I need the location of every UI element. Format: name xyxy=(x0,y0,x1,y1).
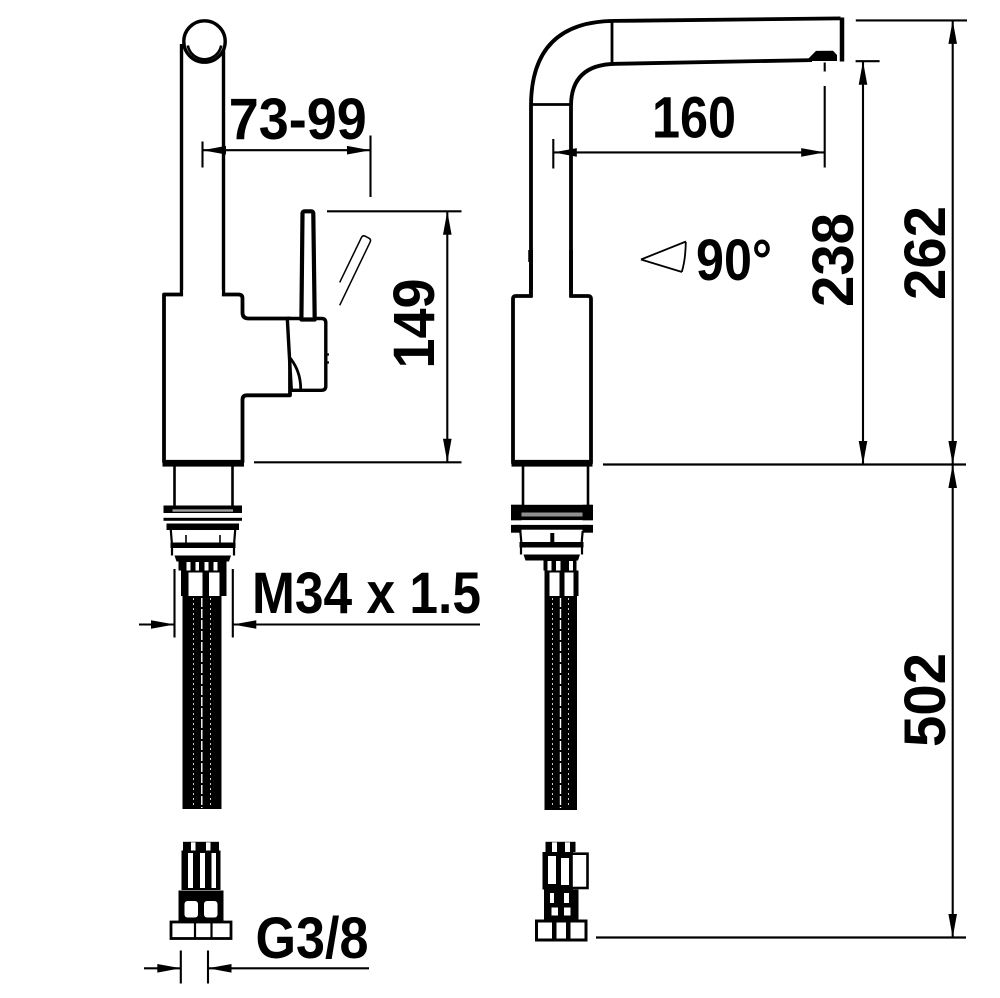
svg-text:238: 238 xyxy=(801,213,866,307)
svg-text:160: 160 xyxy=(652,86,736,151)
svg-text:149: 149 xyxy=(382,279,447,369)
svg-text:M34 x 1.5: M34 x 1.5 xyxy=(252,561,481,626)
svg-text:502: 502 xyxy=(893,653,958,747)
svg-text:262: 262 xyxy=(893,206,958,300)
svg-text:G3/8: G3/8 xyxy=(256,906,369,971)
svg-text:73-99: 73-99 xyxy=(229,87,367,152)
svg-text:90°: 90° xyxy=(696,228,772,293)
